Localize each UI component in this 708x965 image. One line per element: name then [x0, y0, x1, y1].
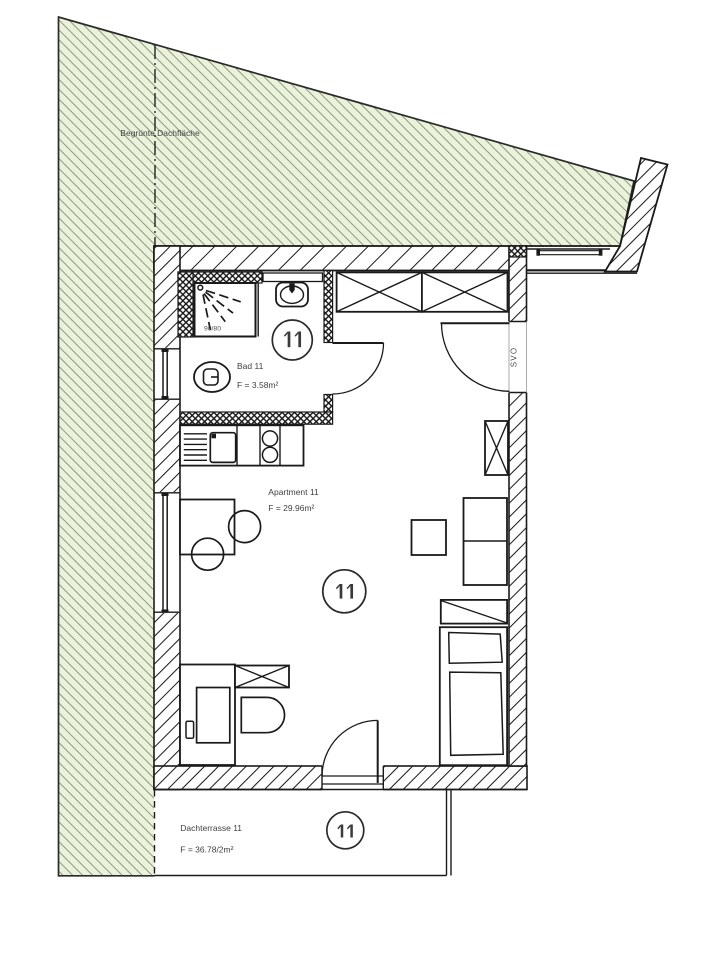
- svg-text:F = 3.58m²: F = 3.58m²: [237, 380, 279, 390]
- svg-text:90/80: 90/80: [204, 326, 221, 333]
- svg-text:Begrünte Dachfläche: Begrünte Dachfläche: [120, 128, 200, 138]
- svg-text:SVO: SVO: [510, 347, 519, 368]
- svg-text:Dachterrasse 11: Dachterrasse 11: [180, 823, 242, 833]
- svg-text:Bad 11: Bad 11: [237, 361, 264, 371]
- svg-text:F = 29.96m²: F = 29.96m²: [268, 503, 314, 513]
- svg-text:F = 36.78/2m²: F = 36.78/2m²: [180, 845, 233, 855]
- svg-text:Apartment 11: Apartment 11: [268, 487, 319, 497]
